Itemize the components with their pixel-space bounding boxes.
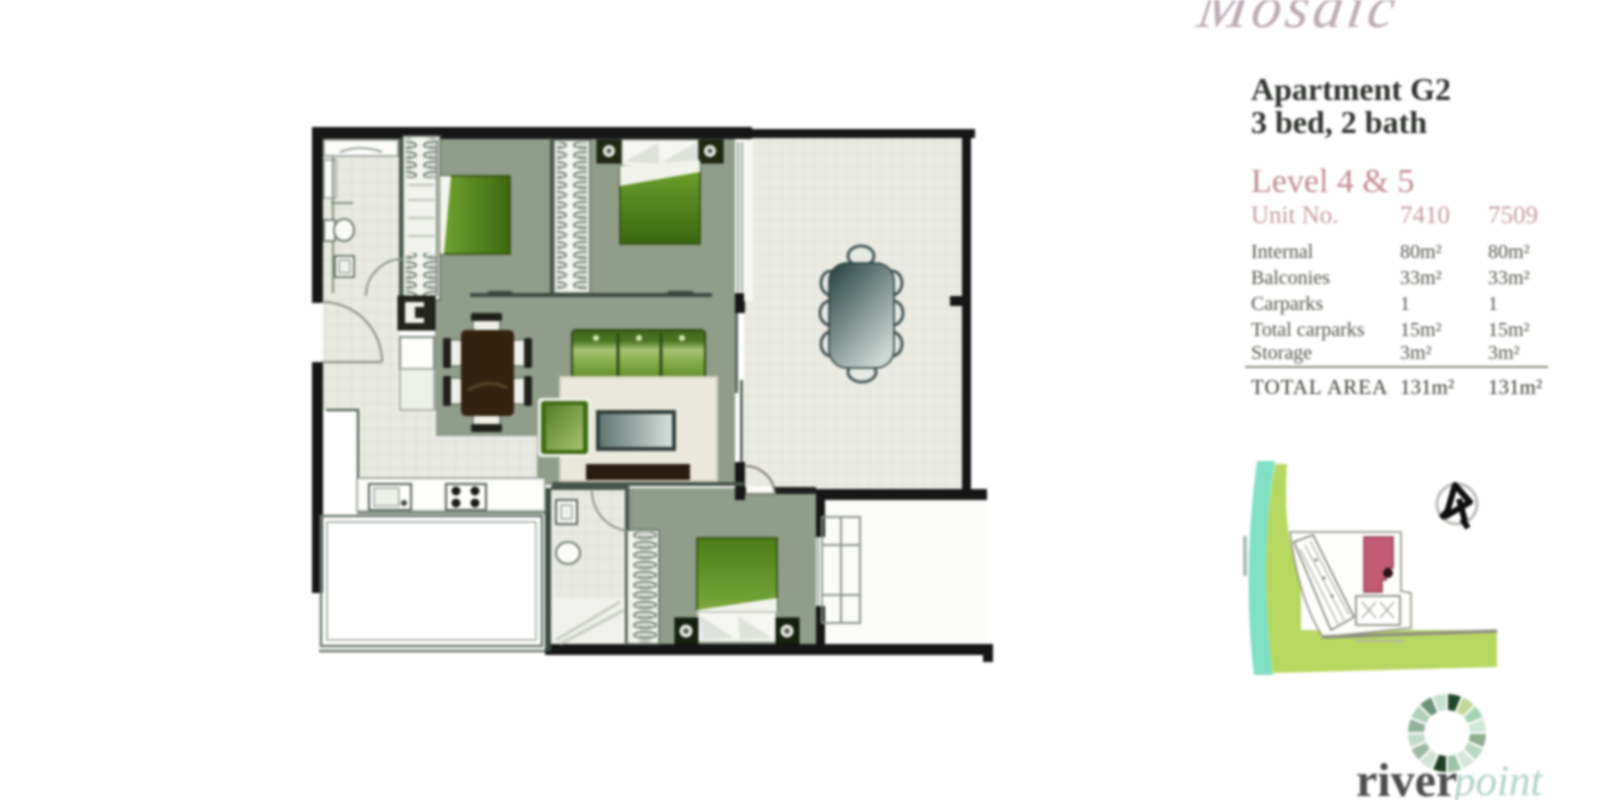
svg-text:3m²: 3m² xyxy=(1488,342,1520,364)
svg-text:Balconies: Balconies xyxy=(1251,267,1330,289)
svg-text:1: 1 xyxy=(1400,293,1410,315)
svg-text:131m²: 131m² xyxy=(1488,375,1542,399)
svg-text:TOTAL AREA: TOTAL AREA xyxy=(1251,375,1388,399)
svg-text:Total carparks: Total carparks xyxy=(1251,319,1365,341)
svg-text:Mosaic: Mosaic xyxy=(1193,0,1404,41)
svg-text:river: river xyxy=(1356,754,1457,800)
svg-text:131m²: 131m² xyxy=(1400,375,1454,399)
svg-text:15m²: 15m² xyxy=(1400,319,1442,341)
svg-text:15m²: 15m² xyxy=(1488,319,1530,341)
svg-text:point: point xyxy=(1451,758,1543,800)
svg-text:Unit No.: Unit No. xyxy=(1251,202,1339,229)
svg-text:33m²: 33m² xyxy=(1400,267,1442,289)
svg-text:7410: 7410 xyxy=(1400,202,1450,229)
svg-text:1: 1 xyxy=(1488,293,1498,315)
svg-text:7509: 7509 xyxy=(1488,202,1538,229)
svg-text:Level 4 & 5: Level 4 & 5 xyxy=(1251,163,1414,200)
svg-text:33m²: 33m² xyxy=(1488,267,1530,289)
svg-text:80m²: 80m² xyxy=(1400,241,1442,263)
svg-text:3 bed, 2 bath: 3 bed, 2 bath xyxy=(1251,104,1427,140)
svg-text:3m²: 3m² xyxy=(1400,342,1432,364)
svg-text:Apartment G2: Apartment G2 xyxy=(1251,71,1451,107)
svg-text:80m²: 80m² xyxy=(1488,241,1530,263)
svg-text:Carparks: Carparks xyxy=(1251,293,1323,315)
svg-text:Internal: Internal xyxy=(1251,241,1314,263)
svg-text:Storage: Storage xyxy=(1251,342,1312,364)
